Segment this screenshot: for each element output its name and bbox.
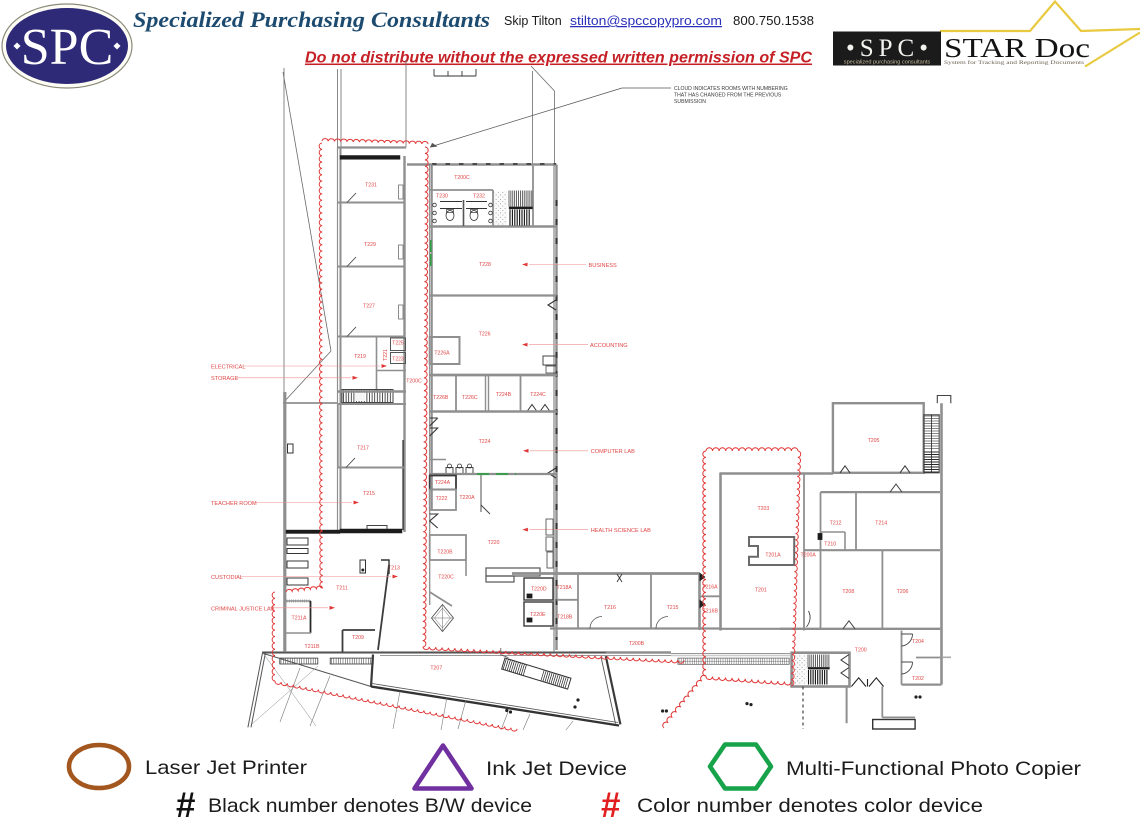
svg-text:T215: T215 (667, 605, 679, 611)
svg-text:T224A: T224A (435, 480, 451, 486)
svg-text:T229: T229 (364, 242, 376, 248)
svg-text:T214: T214 (875, 521, 887, 527)
svg-text:STAR Doc: STAR Doc (944, 33, 1090, 63)
svg-text:BUSINESS: BUSINESS (589, 263, 618, 269)
svg-text:800.750.1538: 800.750.1538 (733, 14, 814, 28)
svg-text:T220: T220 (488, 540, 500, 546)
svg-text:T220A: T220A (459, 495, 475, 501)
svg-text:T220E: T220E (530, 612, 546, 618)
svg-text:T209: T209 (352, 635, 364, 641)
svg-text:T208: T208 (842, 589, 854, 595)
svg-text:T222: T222 (436, 496, 448, 502)
svg-text:T218A: T218A (557, 585, 573, 591)
svg-text:T224: T224 (479, 439, 491, 445)
svg-text:T216: T216 (604, 605, 616, 611)
svg-text:T200C: T200C (406, 379, 422, 385)
svg-text:STORAGE: STORAGE (211, 376, 239, 382)
svg-text:SPC: SPC (21, 19, 114, 76)
svg-text:CRIMINAL JUSTICE LAB: CRIMINAL JUSTICE LAB (211, 606, 275, 612)
svg-text:T200C: T200C (454, 175, 470, 181)
svg-text:• S P C •: • S P C • (846, 35, 928, 62)
svg-text:T227: T227 (363, 304, 375, 310)
svg-text:T225: T225 (392, 341, 404, 347)
svg-text:ACCOUNTING: ACCOUNTING (590, 343, 628, 349)
svg-text:T200A: T200A (801, 553, 817, 559)
svg-text:T200B: T200B (629, 641, 645, 647)
svg-text:T220D: T220D (531, 587, 547, 593)
svg-text:THAT HAS CHANGED FROM THE PREV: THAT HAS CHANGED FROM THE PREVIOUS (674, 93, 782, 99)
svg-text:T220C: T220C (438, 575, 454, 581)
svg-text:T213: T213 (388, 566, 400, 572)
svg-text:T207: T207 (430, 666, 442, 672)
svg-text:System for Tracking and Report: System for Tracking and Reporting Docume… (944, 59, 1084, 66)
svg-text:Do not distribute without the: Do not distribute without the expressed … (305, 50, 813, 67)
svg-text:T212: T212 (830, 521, 842, 527)
svg-text:Black number denotes B/W devic: Black number denotes B/W device (208, 795, 532, 817)
svg-text:Color number denotes color dev: Color number denotes color device (637, 795, 983, 817)
svg-text:T226: T226 (479, 332, 491, 338)
svg-text:CUSTODIAL: CUSTODIAL (211, 575, 243, 581)
svg-text:T211B: T211B (305, 644, 320, 650)
svg-text:T200: T200 (855, 648, 867, 654)
svg-text:Specialized Purchasing Consult: Specialized Purchasing Consultants (133, 7, 490, 32)
svg-text:Ink Jet Device: Ink Jet Device (486, 758, 627, 780)
svg-text:T201: T201 (755, 588, 767, 594)
svg-text:T231: T231 (365, 183, 377, 189)
svg-text:T210: T210 (824, 542, 836, 548)
svg-text:T220B: T220B (437, 550, 453, 556)
svg-text:T224B: T224B (496, 392, 512, 398)
svg-text:SUBMISSION: SUBMISSION (674, 99, 706, 105)
svg-text:Skip Tilton: Skip Tilton (504, 14, 562, 28)
svg-text:T218B: T218B (557, 615, 573, 621)
svg-text:TEACHER ROOM: TEACHER ROOM (211, 501, 257, 507)
svg-text:Laser Jet Printer: Laser Jet Printer (145, 757, 308, 779)
svg-text:#: # (176, 786, 195, 825)
svg-text:T221: T221 (383, 349, 389, 361)
svg-text:#: # (601, 786, 620, 825)
svg-text:T204: T204 (912, 639, 924, 645)
svg-text:T217: T217 (357, 446, 369, 452)
svg-text:T203: T203 (757, 506, 769, 512)
svg-text:HEALTH SCIENCE LAB: HEALTH SCIENCE LAB (591, 528, 651, 534)
svg-text:T228: T228 (479, 262, 491, 268)
svg-text:COMPUTER LAB: COMPUTER LAB (591, 449, 635, 455)
svg-text:ELECTRICAL: ELECTRICAL (211, 364, 246, 370)
svg-text:specialized purchasing consult: specialized purchasing consultants (844, 60, 931, 66)
svg-text:T211: T211 (336, 586, 348, 592)
svg-text:T202: T202 (912, 676, 924, 682)
svg-text:T230: T230 (436, 194, 448, 200)
svg-text:T215: T215 (363, 491, 375, 497)
svg-text:T226C: T226C (462, 395, 478, 401)
svg-text:CLOUD INDICATES ROOMS WITH NUM: CLOUD INDICATES ROOMS WITH NUMBERING (674, 86, 788, 92)
svg-text:T232: T232 (473, 194, 485, 200)
svg-text:Multi-Functional Photo Copier: Multi-Functional Photo Copier (786, 758, 1082, 780)
svg-text:T211A: T211A (292, 616, 307, 622)
svg-text:T205: T205 (868, 438, 880, 444)
svg-text:T206: T206 (897, 589, 909, 595)
svg-text:T201A: T201A (765, 553, 781, 559)
svg-text:T224C: T224C (530, 392, 546, 398)
svg-text:T226A: T226A (434, 351, 450, 357)
svg-text:T219: T219 (354, 354, 366, 360)
svg-text:T226B: T226B (433, 395, 449, 401)
svg-text:T216A: T216A (702, 584, 718, 590)
svg-text:T223: T223 (392, 357, 404, 363)
svg-text:stilton@spccopypro.com: stilton@spccopypro.com (570, 14, 722, 28)
